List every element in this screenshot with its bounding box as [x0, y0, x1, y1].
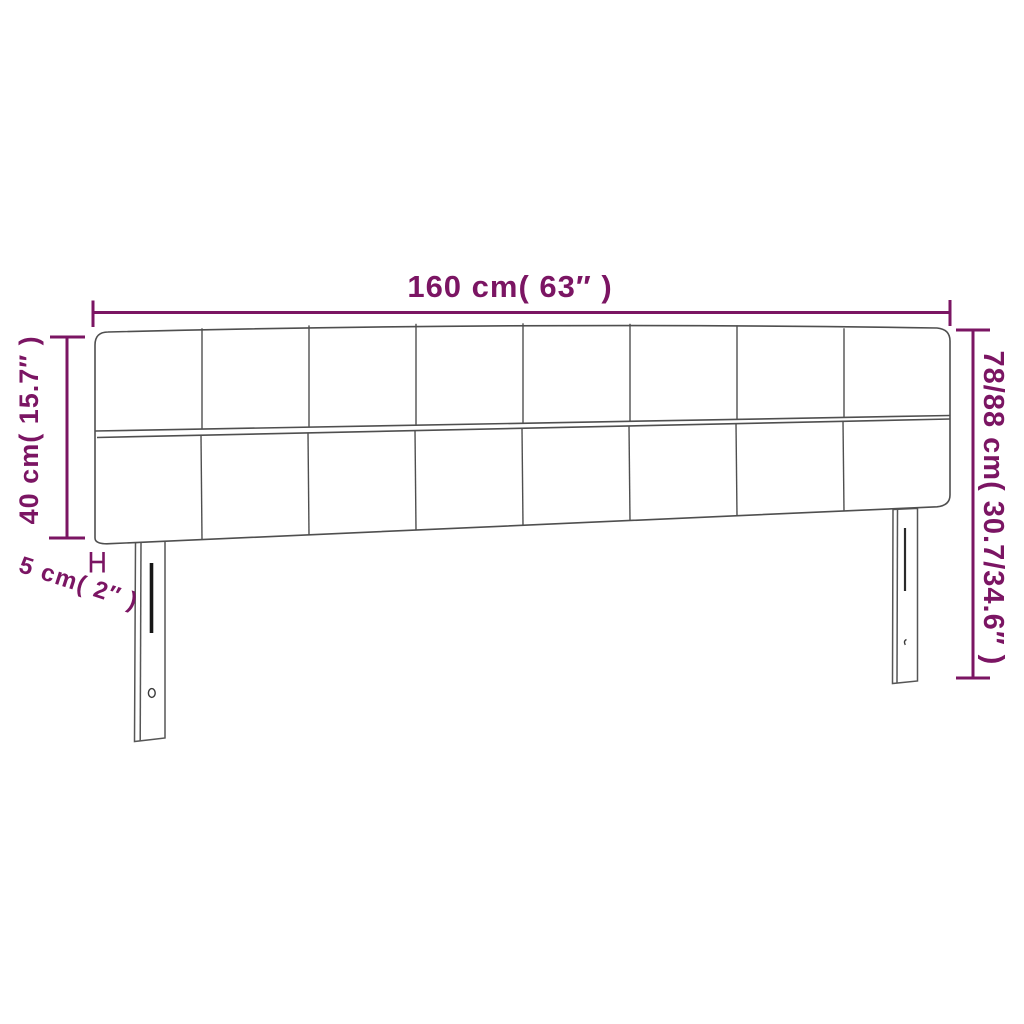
total-height-dimension-label: 78/88 cm( 30.7/34.6″ ) — [976, 318, 1008, 698]
diagram-line-art — [0, 0, 1024, 1024]
leg-thickness-bracket — [91, 552, 104, 573]
panel-height-dimension-line — [49, 337, 85, 538]
headboard-panel — [95, 323, 950, 544]
panel-height-dimension-label: 40 cm( 15.7″ ) — [15, 280, 45, 580]
headboard-dimension-diagram: 160 cm( 63″ ) 40 cm( 15.7″ ) 78/88 cm( 3… — [0, 0, 1024, 1024]
width-dimension-label: 160 cm( 63″ ) — [300, 270, 720, 304]
